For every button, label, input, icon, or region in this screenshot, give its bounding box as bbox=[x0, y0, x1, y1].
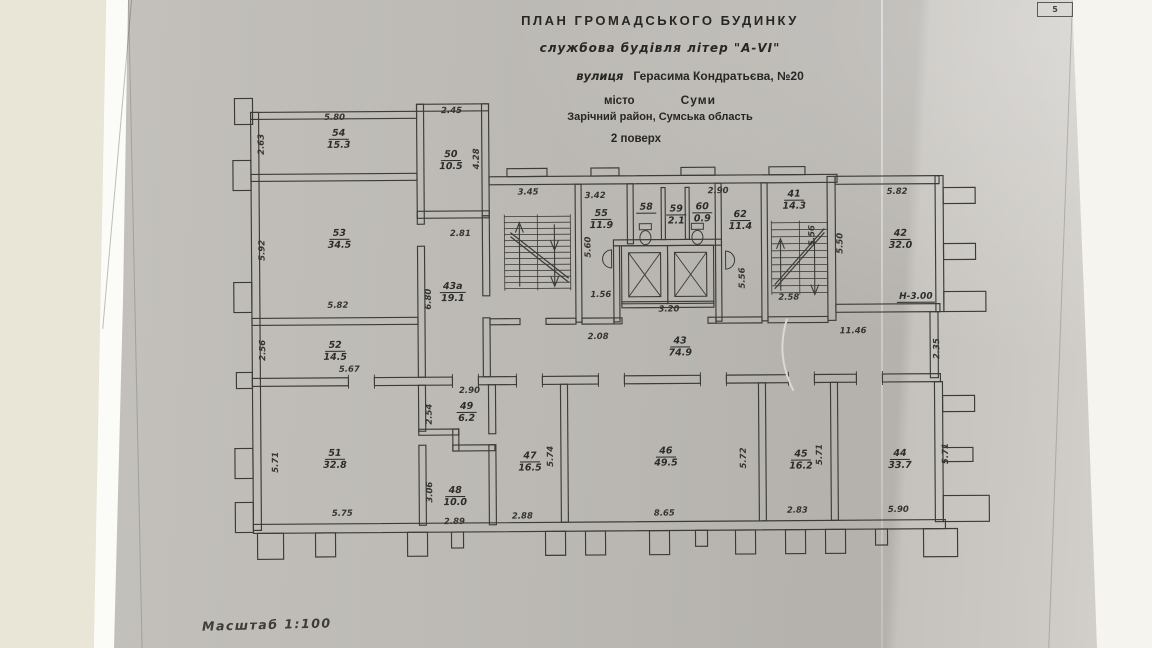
room-label-43: 4374.9 bbox=[656, 335, 704, 359]
room-label-49: 496.2 bbox=[443, 401, 491, 425]
dimension-label: 5.71 bbox=[941, 436, 951, 472]
room-label-53: 5334.5 bbox=[315, 228, 363, 252]
room-label-51: 5132.8 bbox=[311, 448, 359, 472]
walls bbox=[232, 93, 989, 561]
dimension-label: 5.82 bbox=[320, 301, 356, 311]
dimension-label: 2.56 bbox=[258, 332, 268, 368]
scan-scratch-mark bbox=[782, 319, 793, 391]
room-label-52: 5214.5 bbox=[311, 340, 359, 364]
room-label-50: 5010.5 bbox=[427, 149, 475, 173]
elevator-shafts bbox=[621, 245, 713, 304]
dimension-label: 5.50 bbox=[835, 225, 845, 261]
height-mark: Н-3.00 bbox=[888, 292, 944, 302]
dimension-label: 5.56 bbox=[807, 217, 817, 253]
dimension-label: 5.92 bbox=[257, 232, 267, 268]
room-label-44: 4433.7 bbox=[876, 448, 924, 472]
dimension-label: 2.35 bbox=[932, 331, 942, 367]
room-label-48: 4810.0 bbox=[431, 485, 479, 509]
right-staircase bbox=[771, 220, 828, 294]
floor-plan-svg bbox=[0, 0, 1152, 648]
dimension-label: 5.60 bbox=[583, 229, 593, 265]
room-label-42: 4232.0 bbox=[876, 228, 924, 252]
dimension-label: 11.46 bbox=[835, 326, 871, 336]
sink-icon-62 bbox=[726, 251, 735, 269]
dimension-label: 2.08 bbox=[580, 332, 616, 342]
dimension-label: 8.65 bbox=[646, 508, 682, 518]
dimension-label: 2.90 bbox=[700, 186, 736, 196]
dimension-label: 2.89 bbox=[436, 517, 472, 527]
room-label-54: 5415.3 bbox=[315, 128, 363, 152]
room-label-43a: 43а19.1 bbox=[429, 281, 477, 305]
dimension-label: 5.82 bbox=[879, 187, 915, 197]
dimension-label: 2.63 bbox=[257, 126, 267, 162]
dimension-label: 3.06 bbox=[425, 474, 435, 510]
dimension-label: 3.45 bbox=[510, 187, 546, 197]
dimension-label: 3.20 bbox=[651, 304, 687, 314]
scanned-floor-plan-photo: 5 ПЛАН ГРОМАДСЬКОГО БУДИНКУ службова буд… bbox=[0, 0, 1152, 648]
dimension-label: 1.56 bbox=[583, 290, 619, 300]
dimension-label: 2.58 bbox=[771, 293, 807, 303]
toilet-icon-58 bbox=[639, 224, 651, 245]
room-label-62: 6211.4 bbox=[716, 209, 764, 233]
dimension-label: 2.45 bbox=[434, 106, 470, 116]
dimension-label: 2.81 bbox=[442, 229, 478, 239]
room-label-46: 4649.5 bbox=[642, 445, 690, 469]
dimension-label: 4.28 bbox=[472, 141, 482, 177]
dimension-label: 5.74 bbox=[546, 438, 556, 474]
dimension-label: 6.80 bbox=[424, 281, 434, 317]
dimension-label: 2.54 bbox=[425, 396, 435, 432]
dimension-label: 3.42 bbox=[577, 191, 613, 201]
dimension-label: 5.90 bbox=[880, 505, 916, 515]
dimension-label: 5.56 bbox=[738, 260, 748, 296]
sink-icon-hall bbox=[603, 250, 612, 268]
dimension-label: 5.80 bbox=[317, 113, 353, 123]
left-staircase bbox=[504, 214, 571, 290]
floor-plan: 5415.3 5010.5 5334.5 43а19.1 5214.5 5132… bbox=[0, 0, 1152, 648]
dimension-label: 2.90 bbox=[451, 386, 487, 396]
room-label-41: 4114.3 bbox=[770, 188, 818, 212]
dimension-label: 2.83 bbox=[779, 506, 815, 516]
dimension-label: 5.71 bbox=[271, 444, 281, 480]
door-ticks bbox=[348, 371, 882, 389]
dimension-label: 5.71 bbox=[815, 436, 825, 472]
dimension-label: 2.88 bbox=[504, 511, 540, 521]
dimension-label: 5.72 bbox=[739, 440, 749, 476]
dimension-label: 5.75 bbox=[324, 509, 360, 519]
dimension-label: 5.67 bbox=[331, 365, 367, 375]
